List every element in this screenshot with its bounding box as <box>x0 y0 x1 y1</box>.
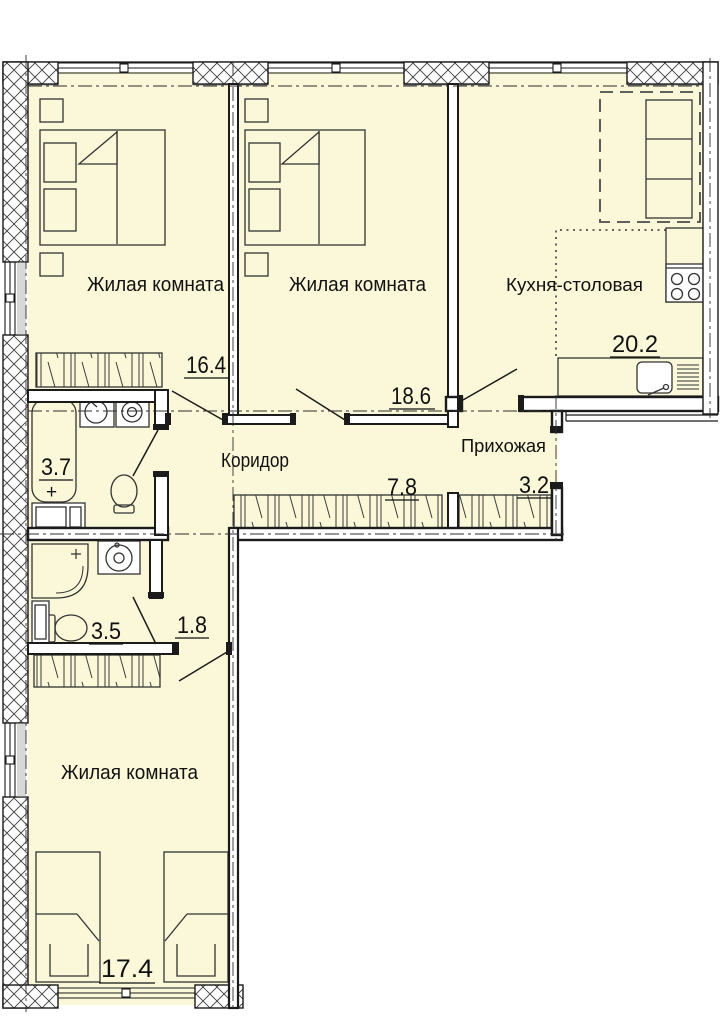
door-jamb <box>344 413 350 425</box>
room-living-1-area: 16.4 <box>186 352 226 379</box>
room-living-3-area: 17.4 <box>101 955 153 983</box>
wall-hallway-left-stub <box>448 411 458 427</box>
wall-hallway-right <box>552 488 562 535</box>
wall-kitchen-bottom <box>520 397 718 411</box>
shower-room-cabinet <box>32 601 49 643</box>
wall-kitchen-right <box>703 62 718 414</box>
door-jamb <box>222 413 228 425</box>
door-jamb <box>290 413 296 425</box>
door-jamb <box>165 413 171 425</box>
wall-bathroom-top <box>28 390 168 402</box>
wall-living2-kitchen <box>448 84 458 397</box>
entry-door-jamb <box>550 426 563 433</box>
wall-bathroom-right <box>155 476 168 535</box>
room-kitchen-area: 20.2 <box>612 331 658 358</box>
wardrobe-hallway <box>459 495 552 528</box>
room-living-3-label: Жилая комната <box>61 762 199 784</box>
room-living-2-area: 18.6 <box>391 383 431 410</box>
stove <box>666 264 704 302</box>
room-shower-area: 3.5 <box>91 618 121 645</box>
door-jamb <box>172 642 178 655</box>
wardrobe-room1 <box>36 353 162 387</box>
wall-pier <box>3 985 58 1008</box>
wall-left <box>3 62 28 262</box>
entry-door-jamb <box>550 482 563 489</box>
door-jamb <box>153 424 169 430</box>
wall-shower-room-right <box>150 540 162 598</box>
wall-corridor-top <box>223 415 295 424</box>
door-jamb <box>153 471 169 477</box>
sink-drainer <box>677 365 699 389</box>
room-corridor-area: 7.8 <box>387 474 417 501</box>
single-bed-1 <box>36 852 100 982</box>
wardrobe-bedroom3 <box>34 655 160 687</box>
room-corridor-label: Коридор <box>221 450 289 472</box>
shower-room-sink <box>98 541 140 574</box>
room-hallway-label: Прихожая <box>461 436 546 456</box>
room-living-2-label: Жилая комната <box>289 274 427 296</box>
wall-pier <box>404 62 489 84</box>
room-bathroom-area: 3.7 <box>41 454 71 481</box>
door-jamb <box>457 395 463 412</box>
bathroom-cabinet <box>32 503 85 531</box>
shower-tray <box>32 544 88 598</box>
door-jamb <box>148 592 164 598</box>
room-kitchen-label: Кухня-столовая <box>506 275 643 295</box>
wall-living1-living2 <box>229 84 238 424</box>
room-closet-area: 1.8 <box>177 612 207 639</box>
wall-left <box>3 335 28 723</box>
floor-plan-svg: Жилая комната 16.4 Жилая комната 18.6 Ку… <box>0 0 728 1024</box>
wall-bedroom3-right <box>229 528 238 1008</box>
room-hallway-area: 3.2 <box>519 472 549 499</box>
door-jamb <box>226 642 232 655</box>
wall-corridor-bottom <box>28 528 168 540</box>
bathroom-plus-mark: + <box>46 482 57 503</box>
wall-left <box>3 797 28 1008</box>
single-bed-2 <box>164 852 228 982</box>
wall-corridor-top <box>345 415 448 424</box>
room-living-1-label: Жилая комната <box>87 274 225 296</box>
door-jamb <box>518 395 524 412</box>
wall-pier <box>193 62 268 84</box>
floor-plan-page: Жилая комната 16.4 Жилая комната 18.6 Ку… <box>0 0 728 1024</box>
